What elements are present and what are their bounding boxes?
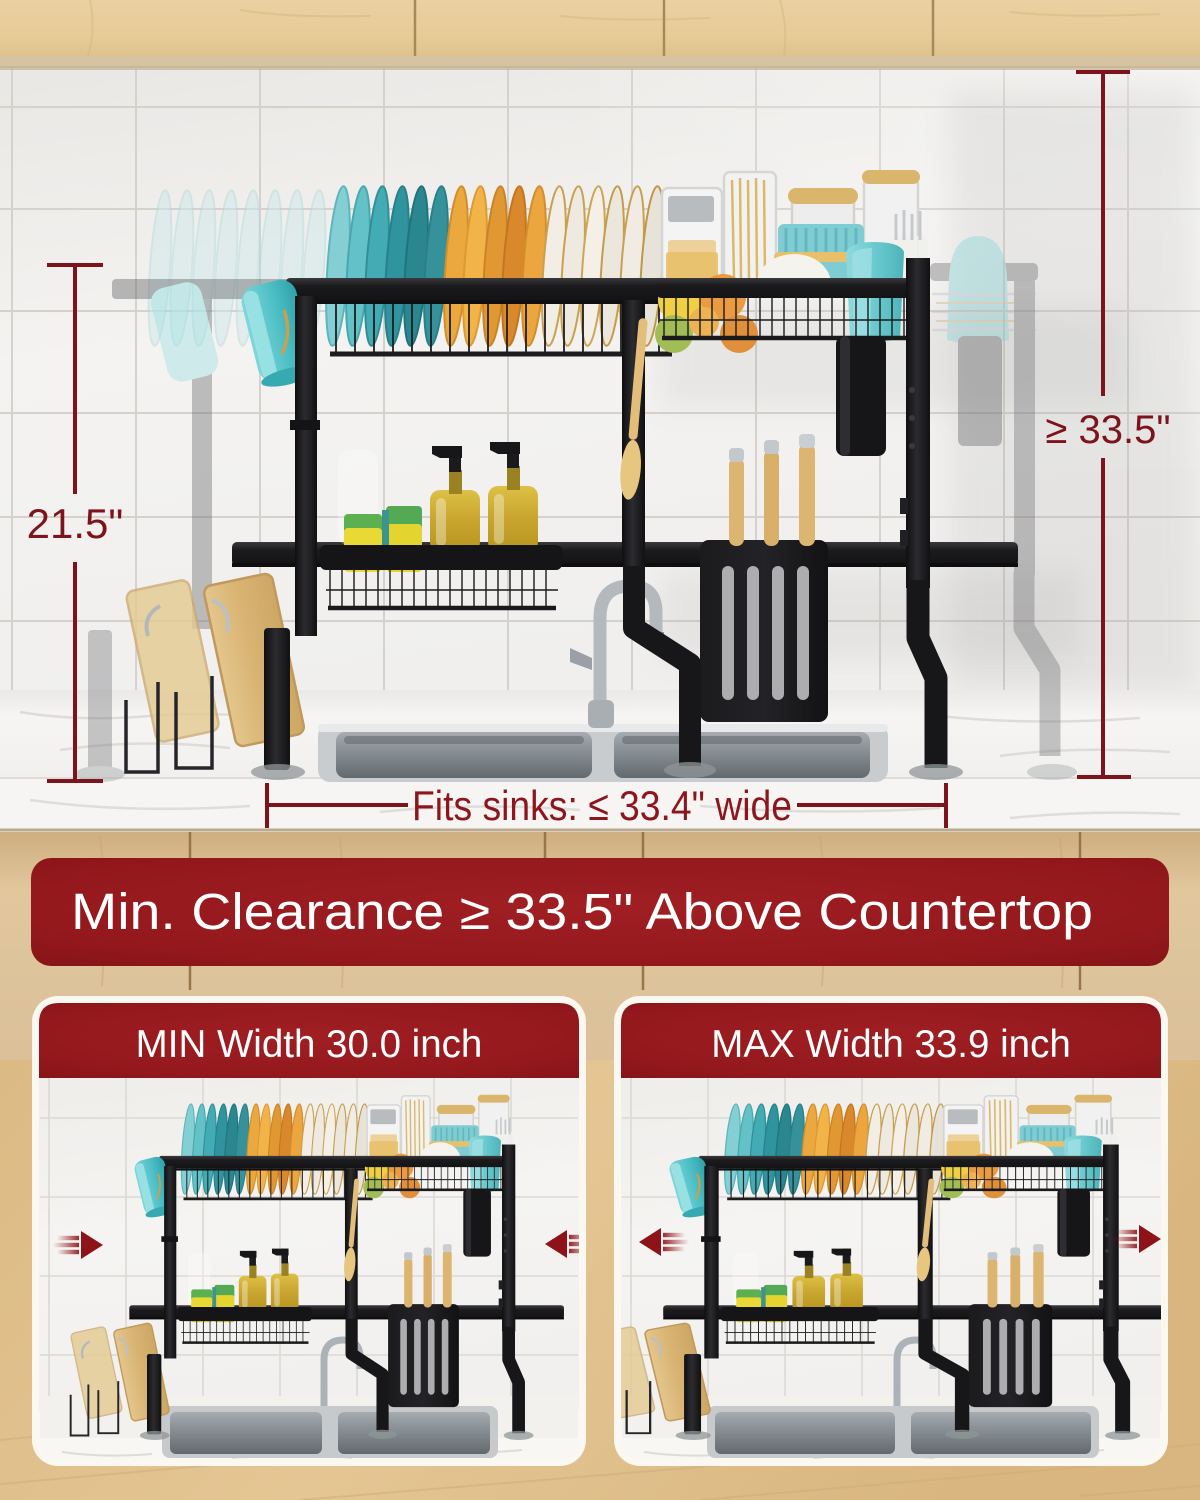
svg-text:21.5": 21.5" bbox=[27, 500, 124, 547]
svg-text:MAX Width 33.9 inch: MAX Width 33.9 inch bbox=[711, 1023, 1071, 1066]
svg-text:MIN Width 30.0 inch: MIN Width 30.0 inch bbox=[136, 1023, 483, 1066]
svg-text:Min. Clearance ≥ 33.5" Above C: Min. Clearance ≥ 33.5" Above Countertop bbox=[71, 883, 1093, 940]
svg-text:≥ 33.5": ≥ 33.5" bbox=[1045, 408, 1170, 452]
svg-text:Fits sinks: ≤ 33.4" wide: Fits sinks: ≤ 33.4" wide bbox=[412, 782, 792, 829]
